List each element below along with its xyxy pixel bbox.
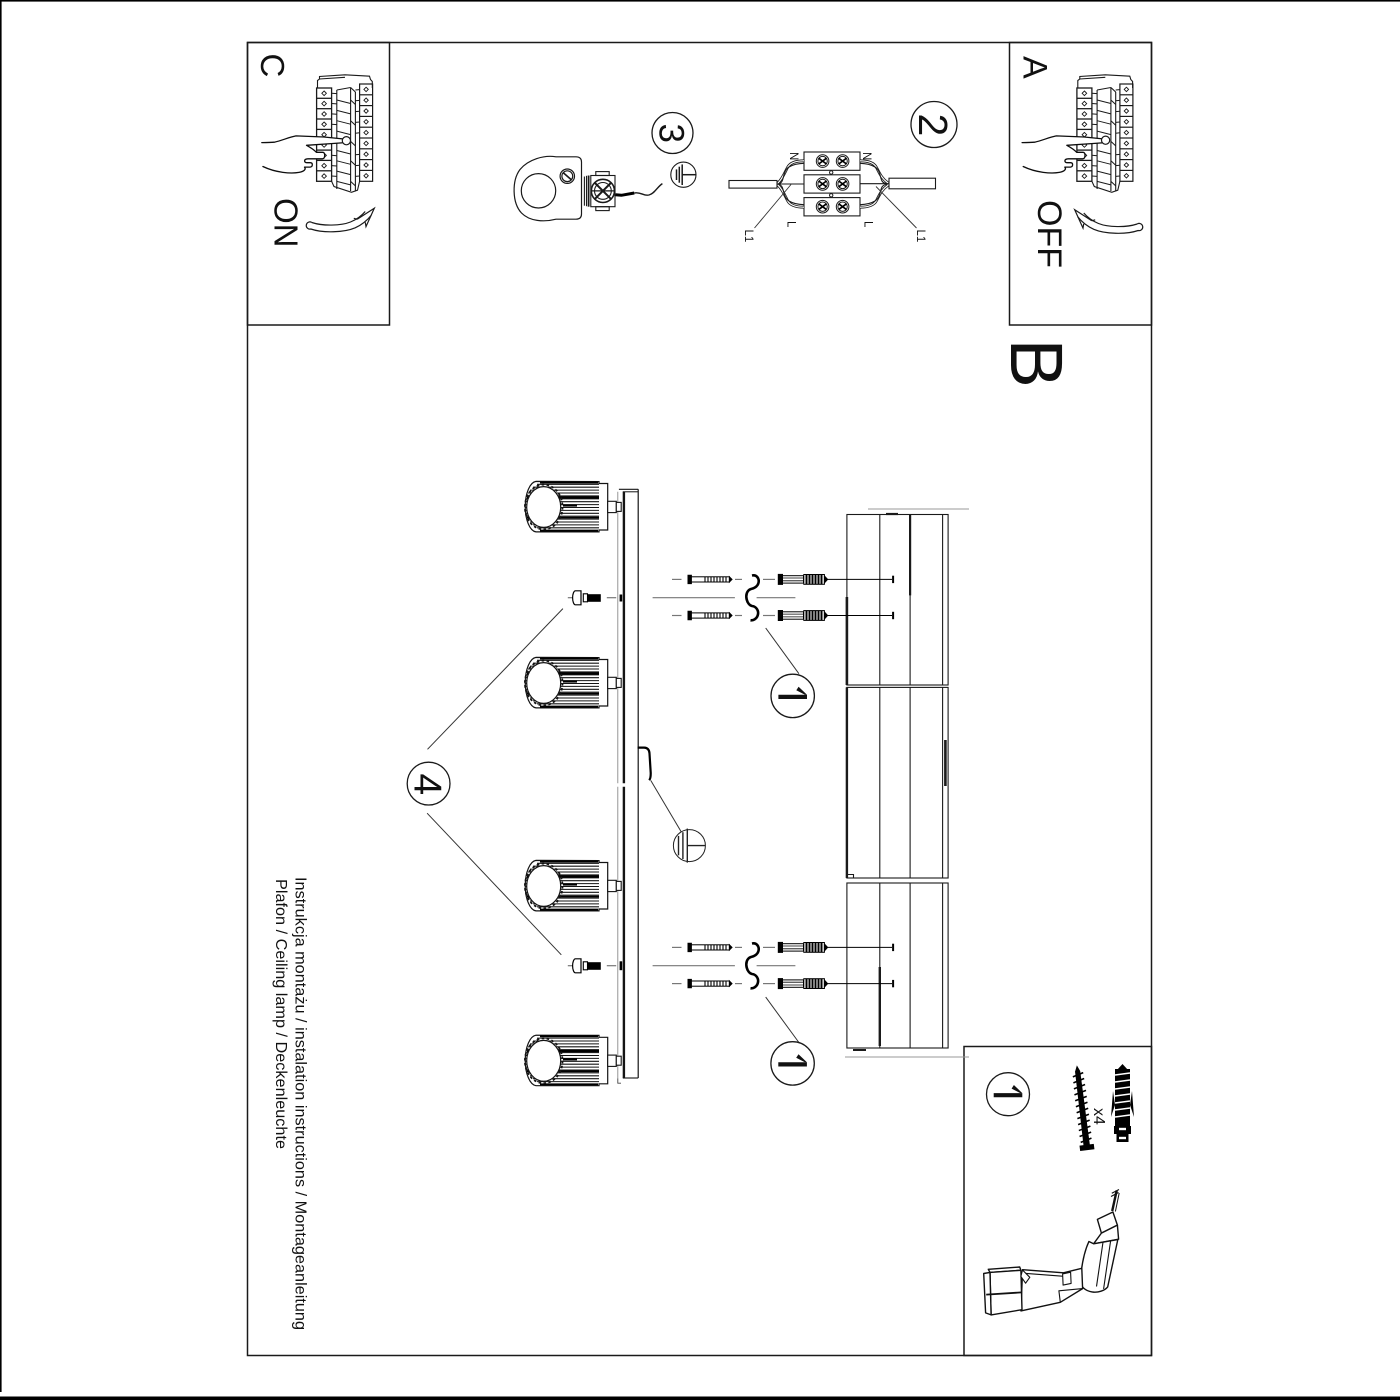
svg-text:N: N (787, 152, 799, 160)
svg-text:L: L (862, 221, 874, 228)
svg-text:3: 3 (652, 124, 691, 143)
svg-text:L: L (785, 221, 797, 228)
svg-text:ON: ON (268, 198, 305, 248)
svg-text:B: B (995, 339, 1078, 388)
svg-text:L1: L1 (914, 230, 926, 243)
svg-text:x4: x4 (1090, 1108, 1107, 1125)
svg-text:C: C (254, 54, 291, 78)
svg-text:N: N (860, 152, 872, 160)
svg-text:4: 4 (406, 774, 449, 796)
svg-text:A: A (1016, 56, 1054, 79)
svg-text:OFF: OFF (1030, 200, 1068, 268)
svg-text:Instrukcja montażu / instalati: Instrukcja montażu / instalation instruc… (292, 877, 309, 1330)
svg-text:Plafon / Ceiling lamp / Decken: Plafon / Ceiling lamp / Deckenleuchte (272, 879, 289, 1149)
svg-text:L1: L1 (742, 230, 754, 243)
svg-text:2: 2 (910, 114, 956, 137)
